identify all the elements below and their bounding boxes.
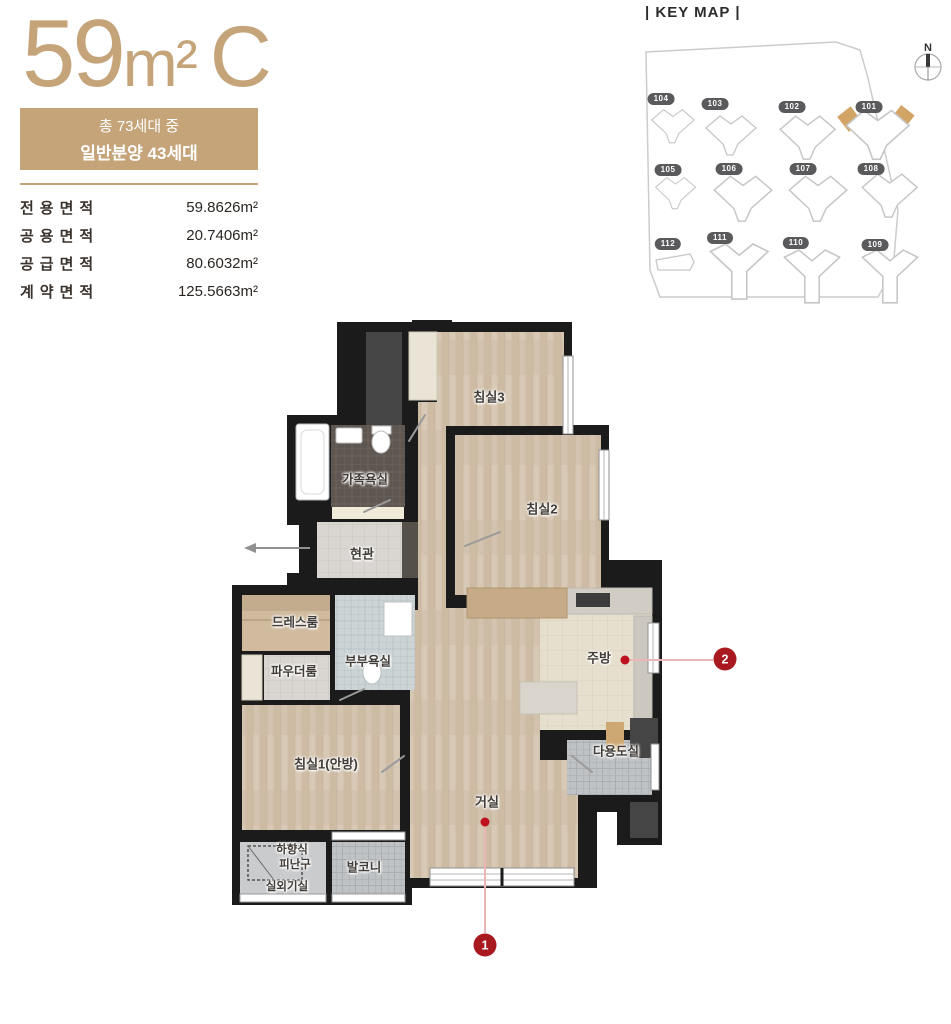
room-label-dressroom: 드레스룸 — [272, 612, 318, 631]
room-label-utility-room: 다용도실 — [593, 741, 639, 760]
area-label: 전용면적 — [20, 197, 99, 218]
table-row: 공급면적 80.6032m² — [20, 249, 258, 277]
supply-total: 총 73세대 중 — [99, 115, 179, 136]
toilet — [372, 431, 390, 453]
table-row: 계약면적 125.5663m² — [20, 277, 258, 305]
building-pill-107: 107 — [790, 163, 817, 175]
room-label-bedroom3: 침실3 — [473, 387, 504, 406]
cooktop — [576, 593, 610, 607]
room-label-entrance: 현관 — [350, 544, 374, 563]
area-value: 20.7406m² — [186, 227, 258, 244]
powder-cabinet — [242, 655, 262, 700]
building-pill-102: 102 — [779, 101, 806, 113]
marker-1-badge: 1 — [474, 934, 497, 957]
area-label: 공용면적 — [20, 225, 99, 246]
room-label-living-room: 거실 — [475, 792, 499, 811]
unit-size-number: 59 — [22, 0, 123, 107]
marker-dot-living — [481, 818, 490, 827]
unit-type-title: 59m²C — [22, 6, 272, 107]
area-value: 125.5663m² — [178, 283, 258, 300]
building-pill-110: 110 — [783, 237, 809, 249]
brochure-page: 59m²C 총 73세대 중 일반분양 43세대 전용면적 59.8626m² … — [0, 0, 951, 1024]
keymap-title: | KEY MAP | — [645, 4, 741, 21]
storage-dark2 — [630, 802, 658, 838]
dining-rug — [520, 682, 577, 714]
balcony-window-bottom — [332, 894, 405, 902]
entrance-mat — [332, 507, 404, 519]
supply-general: 일반분양 43세대 — [80, 139, 197, 164]
marker-line-1 — [484, 827, 486, 933]
room-label-outdoor-unit-room: 실외기실 — [266, 878, 308, 894]
building-pill-105: 105 — [655, 164, 682, 176]
building-pill-112: 112 — [655, 238, 681, 250]
built-in-cabinet — [409, 332, 437, 400]
building-pill-106: 106 — [716, 163, 743, 175]
sink — [336, 428, 362, 443]
room-label-master-bathroom: 부부욕실 — [345, 651, 391, 670]
compass-north-label: N — [924, 42, 932, 54]
compass-icon — [915, 54, 941, 80]
building-pill-109: 109 — [862, 239, 889, 251]
unit-type-letter: C — [210, 9, 272, 105]
marker-2-badge: 2 — [714, 648, 737, 671]
entry-arrow-head — [244, 543, 256, 553]
building-pill-104: 104 — [648, 93, 675, 105]
shoe-cabinet — [402, 522, 418, 578]
marker-dot-kitchen — [621, 656, 630, 665]
building-pill-111: 111 — [707, 232, 733, 244]
balcony-window-top — [332, 832, 405, 840]
room-label-bedroom1: 침실1(안방) — [294, 754, 358, 773]
evac-hatch-label-2: 피난구 — [279, 856, 311, 872]
vanity — [384, 602, 412, 636]
wardrobe — [366, 332, 402, 428]
area-label: 계약면적 — [20, 281, 99, 302]
room-label-powder-room: 파우더룸 — [271, 661, 317, 680]
supply-badge: 총 73세대 중 일반분양 43세대 — [20, 108, 258, 170]
room-label-kitchen: 주방 — [587, 648, 611, 667]
area-table: 전용면적 59.8626m² 공용면적 20.7406m² 공급면적 80.60… — [20, 183, 258, 305]
room-label-bedroom2: 침실2 — [526, 499, 557, 518]
area-value: 59.8626m² — [186, 199, 258, 216]
room-label-family-bathroom: 가족욕실 — [342, 469, 388, 488]
table-row: 공용면적 20.7406m² — [20, 221, 258, 249]
unit-size-unit: m² — [123, 26, 196, 100]
dressroom-shelf — [242, 595, 330, 611]
building-pill-101: 101 — [856, 101, 883, 113]
evac-hatch-label-1: 하향식 — [276, 841, 308, 857]
dining-island — [467, 588, 567, 618]
area-value: 80.6032m² — [186, 255, 258, 272]
building-pill-103: 103 — [702, 98, 729, 110]
room-label-balcony: 발코니 — [347, 857, 382, 876]
evac-window — [240, 894, 326, 902]
marker-line-2 — [630, 659, 713, 661]
table-row: 전용면적 59.8626m² — [20, 193, 258, 221]
building-pill-108: 108 — [858, 163, 885, 175]
area-label: 공급면적 — [20, 253, 99, 274]
bedroom3-floor — [437, 332, 564, 426]
